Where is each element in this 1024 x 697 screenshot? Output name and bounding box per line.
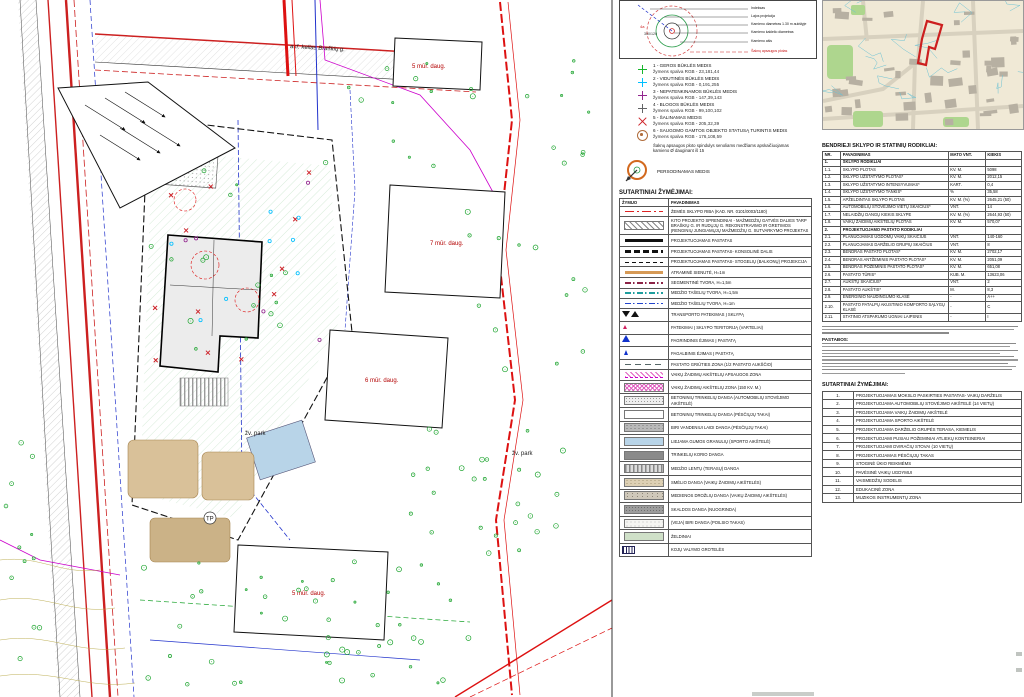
symbol-name: PAGRINDINIS ĖJIMAS Į PASTATĄ bbox=[669, 334, 812, 347]
symbol-swatch bbox=[624, 491, 664, 500]
indicator-unit: - bbox=[948, 294, 985, 302]
tree-status-icon bbox=[637, 130, 648, 141]
symbol-swatch bbox=[622, 310, 640, 319]
numbered-name: MUZIKOS INSTRUMENTŲ ZONA bbox=[854, 494, 1022, 503]
indicator-qty bbox=[985, 227, 1021, 235]
tree-status-rgb: žymens spalva RGB - 205,32,39 bbox=[653, 121, 719, 127]
indicator-unit: KV. M. bbox=[948, 167, 985, 175]
indicator-unit: KV. M. (%) bbox=[948, 197, 985, 205]
symbol-name: SMĖLIO DANGA (VAIKŲ ŽAIDIMŲ AIKŠTELĖS) bbox=[669, 476, 812, 490]
transplanted-tree-label: PERSODINAMAS MEDIS bbox=[657, 169, 710, 174]
indicator-name: PASTATO AUKŠTIS* bbox=[841, 287, 948, 295]
symbol-name: BIRI VANDENIUI LAIDI DANGA (PĖSČIŲJŲ TAK… bbox=[669, 421, 812, 435]
numbered-row: 3. PROJEKTUOJAMA VAIKŲ ŽAIDIMŲ AIKŠTELĖ bbox=[823, 408, 1022, 417]
indicator-nr: 1.4. bbox=[823, 189, 841, 197]
tree-status-icon bbox=[638, 117, 647, 126]
symbol-name: KITO PROJEKTO SPRENDINIAI - MAŽMEDŽIŲ GA… bbox=[669, 217, 812, 235]
right-symbols-title: SUTARTINIAI ŽYMĖJIMAI: bbox=[822, 382, 1023, 388]
building-label: 6 mūr. daug. bbox=[365, 378, 399, 384]
symbol-row: TRINKELIŲ KORIO DANGA bbox=[620, 448, 812, 462]
tree-status-icon bbox=[638, 104, 647, 113]
indicator-qty: 2645,21 (50) bbox=[985, 197, 1021, 205]
tree-status-icon bbox=[638, 91, 647, 100]
numbered-row: 1. PROJEKTUOJAMAS MOKSLO PASKIRTIES PAST… bbox=[823, 391, 1022, 400]
tree-legend-item: 6 - SAUGOMO GAMTOS OBJEKTO STATUSĄ TURIN… bbox=[631, 128, 816, 141]
indicator-name: PROJEKTUOJAMO PASTATO RODIKLIAI bbox=[841, 227, 948, 235]
numbered-nr: 2. bbox=[823, 400, 854, 409]
symbol-swatch bbox=[622, 335, 632, 344]
numbered-name: PROJEKTUOJAMA SPORTO AIKŠTELĖ bbox=[854, 417, 1022, 426]
symbol-name: ŽELDINIAI bbox=[669, 530, 812, 544]
indicator-nr: 1.3. bbox=[823, 182, 841, 190]
building-label: 5 mūr. daug. bbox=[292, 591, 326, 597]
tree-legend-item: 5 - ŠALINAMAS MEDIS žymens spalva RGB - … bbox=[631, 115, 816, 126]
indicator-name: STATINIO ATSPARUMO UGNIAI LAIPSNIS bbox=[841, 314, 948, 322]
numbered-nr: 3. bbox=[823, 408, 854, 417]
diagram-label: Kamieno kaklelio diametras bbox=[751, 30, 794, 34]
tree-legend-item: 3 - NEPATENKINAMOS BŪKLĖS MEDIS žymens s… bbox=[631, 89, 816, 100]
playground-area-3 bbox=[150, 518, 230, 562]
tree-diagram-box: 4a 300/120 Indeksas Lajos projekcija Kam… bbox=[619, 0, 817, 59]
symbol-row: MEDIENOS DROŽLIŲ DANGA (VAIKŲ ŽAIDIMŲ AI… bbox=[620, 489, 812, 503]
svg-text:300/120: 300/120 bbox=[644, 32, 657, 36]
indicator-row: 1.1. SKLYPO PLOTAS KV. M. 5098 bbox=[823, 167, 1022, 175]
tree-status-icon bbox=[638, 65, 647, 74]
numbered-name: PROJEKTUOJAMA AUTOMOBILIŲ STOVĖJIMO AIKŠ… bbox=[854, 400, 1022, 409]
indicator-name: PASTATO TŪRIS* bbox=[841, 272, 948, 280]
symbol-name: PAGALBINIS ĖJIMAS Į PASTATĄ bbox=[669, 347, 812, 360]
indicator-row: 1.8. VAIKŲ ŽAIDIMŲ AIKŠTELIŲ PLOTAS KV. … bbox=[823, 219, 1022, 227]
indicator-name: SKLYPO UŽSTATYMO PLOTAS* bbox=[841, 174, 948, 182]
indicator-unit: KUB. M. bbox=[948, 272, 985, 280]
symbols-table: ŽYMUO PAVADINIMAS ŽEMĖS SKLYPO RIBA (KAD… bbox=[619, 198, 812, 557]
numbered-row: 11. VAISMEDŽIŲ SODELIS bbox=[823, 477, 1022, 486]
symbol-swatch bbox=[624, 383, 664, 392]
indicator-name: BENDRAS PASTATO PLOTAS* bbox=[841, 249, 948, 257]
indicator-name: BENDRAS POŽEMINIS PASTATO PLOTAS* bbox=[841, 264, 948, 272]
indicator-name: VAIKŲ ŽAIDIMŲ AIKŠTELIŲ PLOTAS bbox=[841, 219, 948, 227]
tree-status-name: 4 - BLOGOS BŪKLĖS MEDIS bbox=[653, 102, 722, 108]
indicator-row: 2.9. ENERGINIO NAUDINGUMO KLASĖ - A++ bbox=[823, 294, 1022, 302]
symbol-row: MEDŽIO LENTŲ (TERASŲ) DANGA bbox=[620, 462, 812, 476]
symbol-swatch bbox=[624, 437, 664, 446]
symbol-row: ŽELDINIAI bbox=[620, 530, 812, 544]
indicator-name: ENERGINIO NAUDINGUMO KLASĖ bbox=[841, 294, 948, 302]
plan-sheet: asf. kelias Braškių g. bbox=[0, 0, 1024, 697]
indicator-name: SKLYPO UŽSTATYMO INTENSYVUMAS* bbox=[841, 182, 948, 190]
indicator-nr: 2.9. bbox=[823, 294, 841, 302]
diagram-label: Šaknų apsaugos plotas bbox=[751, 49, 787, 53]
symbol-name: (VEJA) BIRI DANGA (POILSIO TAKAS) bbox=[669, 516, 812, 530]
indicator-qty: C bbox=[985, 302, 1021, 314]
indicator-nr: 2.2. bbox=[823, 242, 841, 250]
numbered-row: 2. PROJEKTUOJAMA AUTOMOBILIŲ STOVĖJIMO A… bbox=[823, 400, 1022, 409]
scale-bar-remnant bbox=[752, 692, 814, 696]
indicator-row: 1.3. SKLYPO UŽSTATYMO INTENSYVUMAS* KART… bbox=[823, 182, 1022, 190]
numbered-row: 13. MUZIKOS INSTRUMENTŲ ZONA bbox=[823, 494, 1022, 503]
numbered-row: 12. EDUKACINĖ ZONA bbox=[823, 485, 1022, 494]
indicator-row: 2.4. BENDRAS ANTŽEMINIS PASTATO PLOTAS* … bbox=[823, 257, 1022, 265]
playground-area-1 bbox=[128, 440, 198, 498]
indicator-qty: 2051,09 bbox=[985, 257, 1021, 265]
symbol-swatch bbox=[624, 532, 664, 541]
indicator-nr: 1. bbox=[823, 159, 841, 167]
tree-status-name: 1 - GEROS BŪKLĖS MEDIS bbox=[653, 63, 719, 69]
symbol-name: PROJEKTUOJAMAS PASTATAS bbox=[669, 235, 812, 246]
symbol-swatch bbox=[624, 221, 664, 230]
symbol-name: PASTATO GRIŪTIES ZONA (1/2 PASTATO AUKŠČ… bbox=[669, 360, 812, 370]
indicator-unit: KV. M. bbox=[948, 257, 985, 265]
numbered-name: PROJEKTUOJAMA VAIKŲ ŽAIDIMŲ AIKŠTELĖ bbox=[854, 408, 1022, 417]
symbol-row: SEGMENTINĖ TVORA, H=1,5m bbox=[620, 278, 812, 288]
indicator-row: 2.5. BENDRAS POŽEMINIS PASTATO PLOTAS* K… bbox=[823, 264, 1022, 272]
indicator-nr: 2.8. bbox=[823, 287, 841, 295]
indicator-qty: 5098 bbox=[985, 167, 1021, 175]
col-nr: NR. bbox=[823, 152, 841, 160]
symbol-row: (VEJA) BIRI DANGA (POILSIO TAKAS) bbox=[620, 516, 812, 530]
tree-status-legend: 1 - GEROS BŪKLĖS MEDIS žymens spalva RGB… bbox=[619, 63, 816, 141]
location-map bbox=[822, 0, 1024, 130]
symbol-swatch bbox=[625, 303, 663, 305]
symbol-name: PATEKIMAI Į SKLYPO TERITORIJĄ (VARTELIAI… bbox=[669, 321, 812, 334]
numbered-nr: 11. bbox=[823, 477, 854, 486]
symbol-row: LIEJAMA GUMOS GRANULIŲ (SPORTO AIKŠTELĖ) bbox=[620, 435, 812, 449]
symbol-name: KOJŲ VALYMO GROTELĖS bbox=[669, 543, 812, 556]
symbol-row: TRANSPORTO PATEKIMAS Į SKLYPĄ bbox=[620, 308, 812, 321]
symbol-name: BETONINIŲ TRINKELIŲ DANGA (AUTOMOBILIŲ S… bbox=[669, 394, 812, 408]
site-plan-svg: asf. kelias Braškių g. bbox=[0, 0, 613, 697]
indicator-nr: 1.8. bbox=[823, 219, 841, 227]
symbol-row: BIRI VANDENIUI LAIDI DANGA (PĖSČIŲJŲ TAK… bbox=[620, 421, 812, 435]
indicator-row: 2.11. STATINIO ATSPARUMO UGNIAI LAIPSNIS… bbox=[823, 314, 1022, 322]
symbol-name: LIEJAMA GUMOS GRANULIŲ (SPORTO AIKŠTELĖ) bbox=[669, 435, 812, 449]
indicator-unit: KART. bbox=[948, 182, 985, 190]
indicator-unit: VNT. bbox=[948, 234, 985, 242]
parking-label: žv. park bbox=[245, 431, 267, 437]
symbol-name: BETONINIŲ TRINKELIŲ DANGA (PĖSČIŲJŲ TAKA… bbox=[669, 408, 812, 422]
site-plan-map: asf. kelias Braškių g. bbox=[0, 0, 613, 697]
building-label: 5 mūr. daug. bbox=[412, 64, 446, 70]
numbered-name: PROJEKTUOJAMAS PĖSČIŲJŲ TAKAS bbox=[854, 451, 1022, 460]
indicator-qty bbox=[985, 159, 1021, 167]
indicator-name: APŽELDINTAS SKLYPO PLOTAS bbox=[841, 197, 948, 205]
numbered-name: PROJEKTUOJAMI PUSIAU POŽEMINIAI ATLIEKŲ … bbox=[854, 434, 1022, 443]
indicator-unit: - bbox=[948, 302, 985, 314]
symbol-swatch bbox=[624, 464, 664, 473]
indicator-name: NELAIDŽIŲ DANGŲ KIEKIS SKLYPE bbox=[841, 212, 948, 220]
indicator-qty: 0,4 bbox=[985, 182, 1021, 190]
tree-status-rgb: žymens spalva RGB - 0,191,255 bbox=[653, 82, 719, 88]
indicator-qty: 35,58 bbox=[985, 189, 1021, 197]
symbol-swatch bbox=[624, 478, 664, 487]
indicator-unit: % bbox=[948, 189, 985, 197]
sheet-edge-mark bbox=[1016, 668, 1022, 672]
symbol-row: ŽEMĖS SKLYPO RIBA (KAD. NR. 0101/0003/11… bbox=[620, 206, 812, 216]
diagram-label: Kamieno ašis bbox=[751, 39, 772, 43]
numbered-name: VAISMEDŽIŲ SODELIS bbox=[854, 477, 1022, 486]
indicator-row: 2.1. PLANUOJAMAS UGDOMŲ VAIKŲ SKAIČIUS V… bbox=[823, 234, 1022, 242]
symbol-name: VAIKŲ ŽAIDIMŲ AIKŠTELIŲ ZONA (150 KV. M.… bbox=[669, 380, 812, 394]
indicator-row: 1.5. APŽELDINTAS SKLYPO PLOTAS KV. M. (%… bbox=[823, 197, 1022, 205]
symbol-swatch bbox=[624, 410, 664, 419]
indicator-nr: 2.1. bbox=[823, 234, 841, 242]
numbered-nr: 8. bbox=[823, 451, 854, 460]
symbol-row: VAIKŲ ŽAIDIMŲ AIKŠTELIŲ APSAUGOS ZONA bbox=[620, 370, 812, 381]
symbol-row: SKALDOS DANGA (NUOGRINDA) bbox=[620, 503, 812, 517]
numbered-name: EDUKACINĖ ZONA bbox=[854, 485, 1022, 494]
symbol-swatch bbox=[624, 505, 664, 514]
numbered-nr: 7. bbox=[823, 442, 854, 451]
indicator-row: 1.6. AUTOMOBILIŲ STOVĖJIMO VIETŲ SKAIČIU… bbox=[823, 204, 1022, 212]
numbered-row: 7. PROJEKTUOJAMI DVIRAČIŲ STOVAI (10 VIE… bbox=[823, 442, 1022, 451]
symbol-row: PAGRINDINIS ĖJIMAS Į PASTATĄ bbox=[620, 334, 812, 347]
numbered-nr: 6. bbox=[823, 434, 854, 443]
tree-status-name: 6 - SAUGOMO GAMTOS OBJEKTO STATUSĄ TURIN… bbox=[653, 128, 787, 134]
symbol-swatch bbox=[625, 262, 663, 263]
symbol-swatch bbox=[625, 250, 663, 253]
legend-column: 4a 300/120 Indeksas Lajos projekcija Kam… bbox=[619, 0, 816, 557]
svg-text:TP: TP bbox=[206, 517, 214, 523]
indicator-name: PLANUOJAMAS UGDOMŲ VAIKŲ SKAIČIUS bbox=[841, 234, 948, 242]
indicator-qty: 2702,17 bbox=[985, 249, 1021, 257]
sheet-edge-mark bbox=[1016, 652, 1022, 656]
indicator-nr: 2.3. bbox=[823, 249, 841, 257]
indicator-unit: VNT. bbox=[948, 279, 985, 287]
symbol-swatch bbox=[625, 282, 663, 284]
indicator-unit: M. bbox=[948, 287, 985, 295]
symbol-row: PROJEKTUOJAMAS PASTATAS bbox=[620, 235, 812, 246]
symbol-row: PAGALBINIS ĖJIMAS Į PASTATĄ bbox=[620, 347, 812, 360]
indicator-name: PASTATO PATALPŲ AKUSTINIO KOMFORTO SĄLYG… bbox=[841, 302, 948, 314]
symbol-name: TRINKELIŲ KORIO DANGA bbox=[669, 448, 812, 462]
diagram-label: Kamieno diametras 1.30 m aukštyje bbox=[751, 22, 806, 26]
indicator-name: AUTOMOBILIŲ STOVĖJIMO VIETŲ SKAIČIUS* bbox=[841, 204, 948, 212]
indicator-qty: 140-160 bbox=[985, 234, 1021, 242]
indicator-qty: 8 bbox=[985, 242, 1021, 250]
indicator-unit: VNT. bbox=[948, 242, 985, 250]
indicators-table: NR. PAVADINIMAS MATO VNT. KIEKIS 1. SKLY… bbox=[822, 151, 1022, 322]
indicator-row: 2.3. BENDRAS PASTATO PLOTAS* KV. M. 2702… bbox=[823, 249, 1022, 257]
transplanted-tree-row: PERSODINAMAS MEDIS bbox=[623, 158, 816, 184]
indicator-qty: 570,07 bbox=[985, 219, 1021, 227]
symbol-name: MEDŽIO TAŠELIŲ TVORA, H=1,5m bbox=[669, 288, 812, 298]
symbol-swatch bbox=[624, 519, 664, 528]
indicator-qty: 651,08 bbox=[985, 264, 1021, 272]
symbol-swatch bbox=[625, 364, 663, 365]
notes-heading: PASTABOS: bbox=[822, 337, 1020, 342]
indicator-row: 1. SKLYPO RODIKLIAI bbox=[823, 159, 1022, 167]
playground-area-2 bbox=[202, 452, 254, 500]
indicator-name: AUKŠTŲ SKAIČIUS* bbox=[841, 279, 948, 287]
numbered-nr: 10. bbox=[823, 468, 854, 477]
indicator-qty: 2012,15 bbox=[985, 174, 1021, 182]
indicator-unit: - bbox=[948, 314, 985, 322]
tree-legend-item: 1 - GEROS BŪKLĖS MEDIS žymens spalva RGB… bbox=[631, 63, 816, 74]
symbol-name: MEDIENOS DROŽLIŲ DANGA (VAIKŲ ŽAIDIMŲ AI… bbox=[669, 489, 812, 503]
col-qty: KIEKIS bbox=[985, 152, 1021, 160]
indicator-unit: KV. M. (%) bbox=[948, 212, 985, 220]
symbol-name: ATRAMINĖ SIENUTĖ, H=1m bbox=[669, 267, 812, 278]
diagram-label: Lajos projekcija bbox=[751, 14, 775, 18]
indicator-qty: 8,3 bbox=[985, 287, 1021, 295]
indicator-row: 2.10. PASTATO PATALPŲ AKUSTINIO KOMFORTO… bbox=[823, 302, 1022, 314]
numbered-name: PAVĖSINĖ VAIKŲ UGDYMUI bbox=[854, 468, 1022, 477]
symbol-swatch bbox=[624, 423, 664, 432]
numbered-nr: 9. bbox=[823, 459, 854, 468]
symbol-swatch bbox=[624, 451, 664, 460]
indicator-name: SKLYPO RODIKLIAI bbox=[841, 159, 948, 167]
indicator-nr: 1.5. bbox=[823, 197, 841, 205]
transformer-symbol: TP bbox=[204, 512, 216, 524]
indicator-row: 2.2. PLANUOJAMAS DARŽELIO GRUPIŲ SKAIČIU… bbox=[823, 242, 1022, 250]
indicator-unit: KV. M. bbox=[948, 219, 985, 227]
symbol-swatch bbox=[622, 323, 630, 332]
symbol-row: MEDŽIO TAŠELIŲ TVORA, H=1m bbox=[620, 298, 812, 308]
building-label: 7 mūr. daug. bbox=[430, 241, 464, 247]
tree-status-rgb: žymens spalva RGB - 176,108,59 bbox=[653, 134, 787, 140]
parking-label: žv. park bbox=[512, 451, 534, 457]
symbol-name: MEDŽIO LENTŲ (TERASŲ) DANGA bbox=[669, 462, 812, 476]
tree-status-rgb: žymens spalva RGB - 99,100,102 bbox=[653, 108, 722, 114]
indicator-nr: 2.10. bbox=[823, 302, 841, 314]
indicator-unit bbox=[948, 159, 985, 167]
numbered-name: STOGINĖ ŪKIO REIKMĖMS bbox=[854, 459, 1022, 468]
svg-text:4a: 4a bbox=[640, 24, 645, 29]
indicator-nr: 1.7. bbox=[823, 212, 841, 220]
symbol-row: PASTATO GRIŪTIES ZONA (1/2 PASTATO AUKŠČ… bbox=[620, 360, 812, 370]
symbol-row: BETONINIŲ TRINKELIŲ DANGA (AUTOMOBILIŲ S… bbox=[620, 394, 812, 408]
numbered-nr: 13. bbox=[823, 494, 854, 503]
indicator-qty: 2644,93 (50) bbox=[985, 212, 1021, 220]
indicator-nr: 2.6. bbox=[823, 272, 841, 280]
tree-legend-item: 4 - BLOGOS BŪKLĖS MEDIS žymens spalva RG… bbox=[631, 102, 816, 113]
indicator-nr: 1.1. bbox=[823, 167, 841, 175]
indicator-qty: I bbox=[985, 314, 1021, 322]
symbol-swatch bbox=[625, 211, 663, 213]
numbered-row: 9. STOGINĖ ŪKIO REIKMĖMS bbox=[823, 459, 1022, 468]
symbol-name: ŽEMĖS SKLYPO RIBA (KAD. NR. 0101/0003/11… bbox=[669, 206, 812, 216]
indicator-name: PLANUOJAMAS DARŽELIO GRUPIŲ SKAIČIUS bbox=[841, 242, 948, 250]
symbol-swatch bbox=[625, 271, 663, 273]
indicator-row: 2.8. PASTATO AUKŠTIS* M. 8,3 bbox=[823, 287, 1022, 295]
terrace bbox=[180, 378, 228, 406]
indicator-row: 2.7. AUKŠTŲ SKAIČIUS* VNT. 2 bbox=[823, 279, 1022, 287]
transplanted-tree-icon bbox=[623, 158, 649, 184]
numbered-nr: 1. bbox=[823, 391, 854, 400]
indicator-row: 1.2. SKLYPO UŽSTATYMO PLOTAS* KV. M. 201… bbox=[823, 174, 1022, 182]
tree-status-rgb: žymens spalva RGB - 23,181,44 bbox=[653, 69, 719, 75]
symbol-name: SEGMENTINĖ TVORA, H=1,5m bbox=[669, 278, 812, 288]
diagram-label: Indeksas bbox=[751, 6, 765, 10]
numbered-nr: 12. bbox=[823, 485, 854, 494]
indicator-nr: 1.6. bbox=[823, 204, 841, 212]
indicator-qty: 13623,06 bbox=[985, 272, 1021, 280]
tree-status-name: 3 - NEPATENKINAMOS BŪKLĖS MEDIS bbox=[653, 89, 737, 95]
root-protection-note: Šaknų apsaugos ploto spindulys senoliams… bbox=[653, 143, 803, 154]
symbol-name: SKALDOS DANGA (NUOGRINDA) bbox=[669, 503, 812, 517]
numbered-row: 5. PROJEKTUOJAMA DARŽELIO GRUPĖS TERASA,… bbox=[823, 425, 1022, 434]
symbol-row: BETONINIŲ TRINKELIŲ DANGA (PĖSČIŲJŲ TAKA… bbox=[620, 408, 812, 422]
right-column: BENDRIEJI SKLYPO IR STATINIŲ RODIKLIAI: … bbox=[822, 0, 1023, 503]
symbol-row: SMĖLIO DANGA (VAIKŲ ŽAIDIMŲ AIKŠTELĖS) bbox=[620, 476, 812, 490]
numbered-nr: 4. bbox=[823, 417, 854, 426]
indicator-nr: 1.2. bbox=[823, 174, 841, 182]
indicator-row: 2. PROJEKTUOJAMO PASTATO RODIKLIAI bbox=[823, 227, 1022, 235]
indicator-row: 1.4. SKLYPO UŽSTATYMO TANKIS* % 35,58 bbox=[823, 189, 1022, 197]
indicator-unit: KV. M. bbox=[948, 174, 985, 182]
symbol-name: VAIKŲ ŽAIDIMŲ AIKŠTELIŲ APSAUGOS ZONA bbox=[669, 370, 812, 381]
symbol-name: MEDŽIO TAŠELIŲ TVORA, H=1m bbox=[669, 298, 812, 308]
indicators-title: BENDRIEJI SKLYPO IR STATINIŲ RODIKLIAI: bbox=[822, 143, 1023, 149]
symbol-swatch bbox=[625, 239, 663, 242]
numbered-name: PROJEKTUOJAMI DVIRAČIŲ STOVAI (10 VIETŲ) bbox=[854, 442, 1022, 451]
indicator-unit: VNT. bbox=[948, 204, 985, 212]
numbered-name: PROJEKTUOJAMAS MOKSLO PASKIRTIES PASTATA… bbox=[854, 391, 1022, 400]
symbol-row: KITO PROJEKTO SPRENDINIAI - MAŽMEDŽIŲ GA… bbox=[620, 217, 812, 235]
indicator-name: SKLYPO PLOTAS bbox=[841, 167, 948, 175]
col-name: PAVADINIMAS bbox=[841, 152, 948, 160]
symbol-row: VAIKŲ ŽAIDIMŲ AIKŠTELIŲ ZONA (150 KV. M.… bbox=[620, 380, 812, 394]
indicator-nr: 2.11. bbox=[823, 314, 841, 322]
indicator-unit: KV. M. bbox=[948, 249, 985, 257]
numbered-row: 4. PROJEKTUOJAMA SPORTO AIKŠTELĖ bbox=[823, 417, 1022, 426]
indicator-name: SKLYPO UŽSTATYMO TANKIS* bbox=[841, 189, 948, 197]
col-zymuo: ŽYMUO bbox=[620, 199, 669, 207]
symbol-swatch bbox=[625, 372, 663, 378]
symbol-row: PROJEKTUOJAMAS PASTATAS- KONSOLINĖ DALIS bbox=[620, 246, 812, 257]
col-unit: MATO VNT. bbox=[948, 152, 985, 160]
indicator-row: 1.7. NELAIDŽIŲ DANGŲ KIEKIS SKLYPE KV. M… bbox=[823, 212, 1022, 220]
indicator-qty: A++ bbox=[985, 294, 1021, 302]
symbol-row: KOJŲ VALYMO GROTELĖS bbox=[620, 543, 812, 556]
indicator-nr: 2. bbox=[823, 227, 841, 235]
symbol-row: PATEKIMAI Į SKLYPO TERITORIJĄ (VARTELIAI… bbox=[620, 321, 812, 334]
numbered-name: PROJEKTUOJAMA DARŽELIO GRUPĖS TERASA, KI… bbox=[854, 425, 1022, 434]
symbol-swatch bbox=[625, 292, 663, 294]
indicator-qty: 2 bbox=[985, 279, 1021, 287]
indicator-nr: 2.4. bbox=[823, 257, 841, 265]
numbered-row: 8. PROJEKTUOJAMAS PĖSČIŲJŲ TAKAS bbox=[823, 451, 1022, 460]
symbol-name: PROJEKTUOJAMAS PASTATAS- STOGELIŲ (BALKO… bbox=[669, 257, 812, 267]
indicator-nr: 2.7. bbox=[823, 279, 841, 287]
indicator-name: BENDRAS ANTŽEMINIS PASTATO PLOTAS* bbox=[841, 257, 948, 265]
numbered-symbols-table: 1. PROJEKTUOJAMAS MOKSLO PASKIRTIES PAST… bbox=[822, 391, 1022, 503]
tree-legend-item: 2 - VIDUTINĖS BŪKLĖS MEDIS žymens spalva… bbox=[631, 76, 816, 87]
footnotes: PASTABOS: bbox=[822, 326, 1020, 374]
symbol-row: PROJEKTUOJAMAS PASTATAS- STOGELIŲ (BALKO… bbox=[620, 257, 812, 267]
tree-status-icon bbox=[638, 78, 647, 87]
symbol-row: ATRAMINĖ SIENUTĖ, H=1m bbox=[620, 267, 812, 278]
col-pavadinimas: PAVADINIMAS bbox=[669, 199, 812, 207]
symbol-name: PROJEKTUOJAMAS PASTATAS- KONSOLINĖ DALIS bbox=[669, 246, 812, 257]
numbered-row: 10. PAVĖSINĖ VAIKŲ UGDYMUI bbox=[823, 468, 1022, 477]
mid-symbols-title: SUTARTINIAI ŽYMĖJIMAI: bbox=[619, 190, 816, 196]
indicator-unit bbox=[948, 227, 985, 235]
tree-status-name: 2 - VIDUTINĖS BŪKLĖS MEDIS bbox=[653, 76, 719, 82]
symbol-name: TRANSPORTO PATEKIMAS Į SKLYPĄ bbox=[669, 308, 812, 321]
numbered-row: 6. PROJEKTUOJAMI PUSIAU POŽEMINIAI ATLIE… bbox=[823, 434, 1022, 443]
symbol-swatch bbox=[622, 348, 630, 357]
indicator-unit: KV. M. bbox=[948, 264, 985, 272]
indicator-nr: 2.5. bbox=[823, 264, 841, 272]
indicator-qty: 14 bbox=[985, 204, 1021, 212]
symbol-swatch bbox=[624, 396, 664, 405]
symbol-swatch bbox=[622, 546, 635, 554]
indicator-row: 2.6. PASTATO TŪRIS* KUB. M. 13623,06 bbox=[823, 272, 1022, 280]
numbered-nr: 5. bbox=[823, 425, 854, 434]
symbol-row: MEDŽIO TAŠELIŲ TVORA, H=1,5m bbox=[620, 288, 812, 298]
tree-status-rgb: žymens spalva RGB - 147,39,143 bbox=[653, 95, 737, 101]
